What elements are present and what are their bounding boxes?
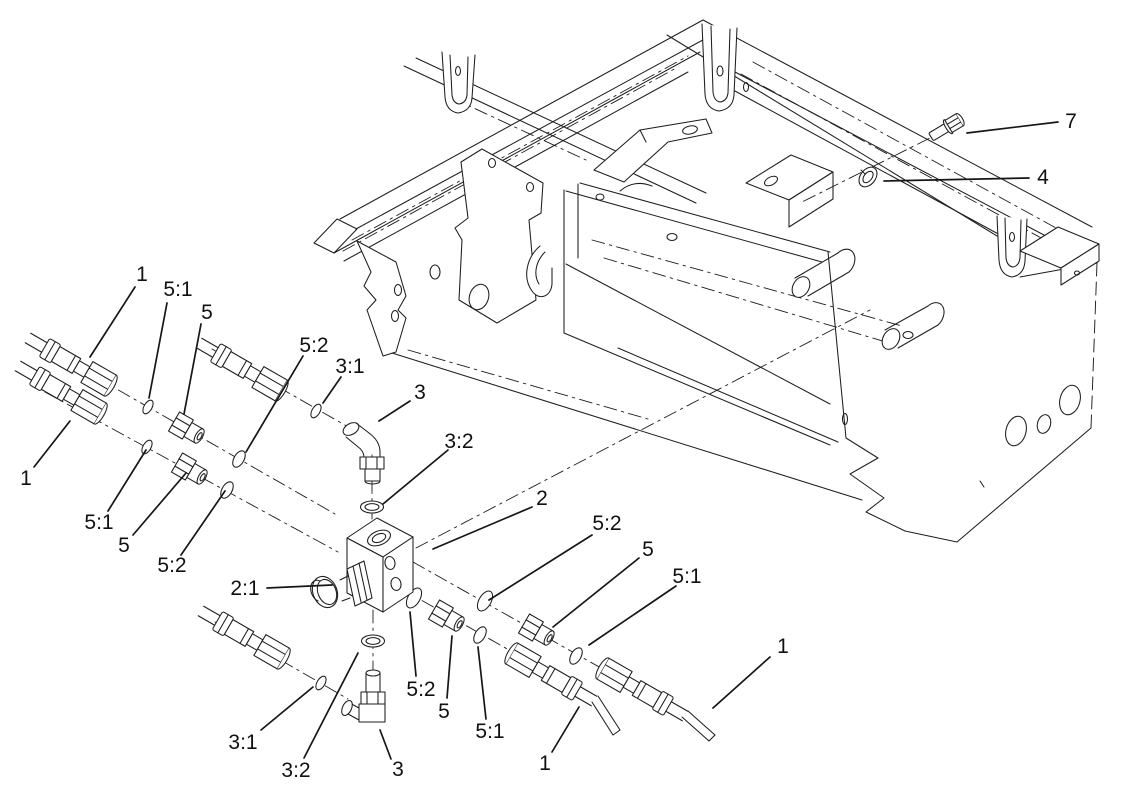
- callout-leader-10: [108, 450, 146, 511]
- fitting-bottom-right-lower: [429, 600, 468, 635]
- fitting-bottom-right-upper: [519, 614, 558, 649]
- callout-label-20: 5:2: [592, 512, 621, 535]
- oring-3-1-a: [309, 403, 323, 420]
- parts-diagram-page: 15:155:23:133:222:115:155:23:13:235:255:…: [0, 0, 1127, 789]
- oring-5-1-c: [471, 625, 489, 646]
- center-box: [564, 183, 913, 445]
- callout-label-25: 4: [1037, 166, 1049, 189]
- clamp-bracket: [746, 155, 833, 227]
- callout-leader-6: [383, 450, 448, 504]
- callout-label-14: 3:2: [281, 759, 310, 782]
- callout-label-15: 3: [392, 758, 404, 781]
- hose-top-middle: [193, 333, 291, 403]
- callout-leader-16: [410, 612, 416, 676]
- callout-label-22: 5:1: [672, 565, 701, 588]
- hanger-bracket-right: [997, 216, 1027, 277]
- callout-label-16: 5:2: [406, 678, 435, 701]
- callout-leader-18: [478, 647, 486, 719]
- hanger-bracket-left: [442, 52, 475, 113]
- callout-leader-9: [34, 421, 70, 467]
- callout-leader-4: [323, 377, 341, 403]
- oring-5-1-a: [141, 399, 155, 416]
- callout-label-2: 5: [201, 301, 213, 324]
- hose-bottom-left: [195, 601, 293, 671]
- callout-label-9: 1: [20, 467, 32, 490]
- callout-leader-2: [184, 324, 201, 414]
- callout-leader-22: [589, 586, 676, 645]
- callout-label-23: 1: [777, 635, 789, 658]
- gusset-plate: [430, 149, 552, 323]
- elbow-fitting-bottom: [340, 670, 385, 722]
- callout-label-6: 3:2: [444, 430, 473, 453]
- oring-3-1-b: [314, 675, 328, 692]
- hose-bottom-right-upper: [593, 656, 691, 726]
- callout-leader-12: [181, 491, 225, 555]
- callout-label-7: 2: [536, 487, 548, 510]
- callout-label-13: 3:1: [228, 731, 257, 754]
- elbow-fitting-top: [341, 420, 384, 484]
- callout-leader-15: [380, 730, 391, 759]
- oring-3-2-a: [361, 501, 384, 513]
- callout-label-1: 5:1: [163, 278, 192, 301]
- callout-leader-1: [149, 303, 167, 398]
- callout-leader-24: [967, 122, 1058, 133]
- callout-label-17: 5: [438, 700, 450, 723]
- mounting-strap: [594, 119, 712, 182]
- hanger-bracket-center: [702, 24, 749, 111]
- callout-leader-19: [552, 707, 579, 752]
- callout-label-12: 5:2: [157, 554, 186, 577]
- callout-leader-20: [489, 535, 592, 600]
- callout-leader-11: [133, 473, 186, 535]
- callout-label-10: 5:1: [84, 511, 113, 534]
- callout-label-5: 3: [414, 381, 426, 404]
- fitting-top-left-upper: [169, 412, 208, 447]
- callout-label-18: 5:1: [475, 720, 504, 743]
- callout-label-8: 2:1: [230, 577, 259, 600]
- callout-leader-25: [884, 178, 1029, 181]
- corner-bracket: [1020, 227, 1099, 285]
- oring-5-1-b: [140, 439, 154, 456]
- hose-bottom-right-lower: [502, 641, 600, 711]
- oring-5-2-d: [474, 588, 495, 613]
- callout-label-19: 1: [539, 752, 551, 775]
- callout-leader-21: [553, 558, 639, 627]
- callout-label-24: 7: [1065, 110, 1077, 133]
- callout-leader-7: [433, 507, 532, 549]
- end-plate-left: [357, 241, 406, 356]
- callout-leader-0: [90, 287, 135, 357]
- callout-label-11: 5: [118, 534, 130, 557]
- callout-label-3: 5:2: [299, 334, 328, 357]
- exploded-parts-diagram: 15:155:23:133:222:115:155:23:13:235:255:…: [0, 0, 1127, 789]
- oring-3-2-b: [362, 635, 385, 647]
- assembly-axes: [45, 310, 870, 699]
- callout-label-4: 3:1: [335, 355, 364, 378]
- oring-5-1-d: [567, 646, 585, 667]
- callout-leader-17: [447, 636, 452, 698]
- callout-label-0: 1: [136, 263, 148, 286]
- support-pin-left: [789, 249, 855, 300]
- callout-leader-13: [261, 687, 313, 730]
- bolt: [927, 111, 967, 144]
- support-pin-right: [879, 303, 944, 353]
- callout-leader-5: [379, 401, 410, 421]
- callout-label-21: 5: [642, 538, 654, 561]
- callout-leader-23: [713, 657, 770, 708]
